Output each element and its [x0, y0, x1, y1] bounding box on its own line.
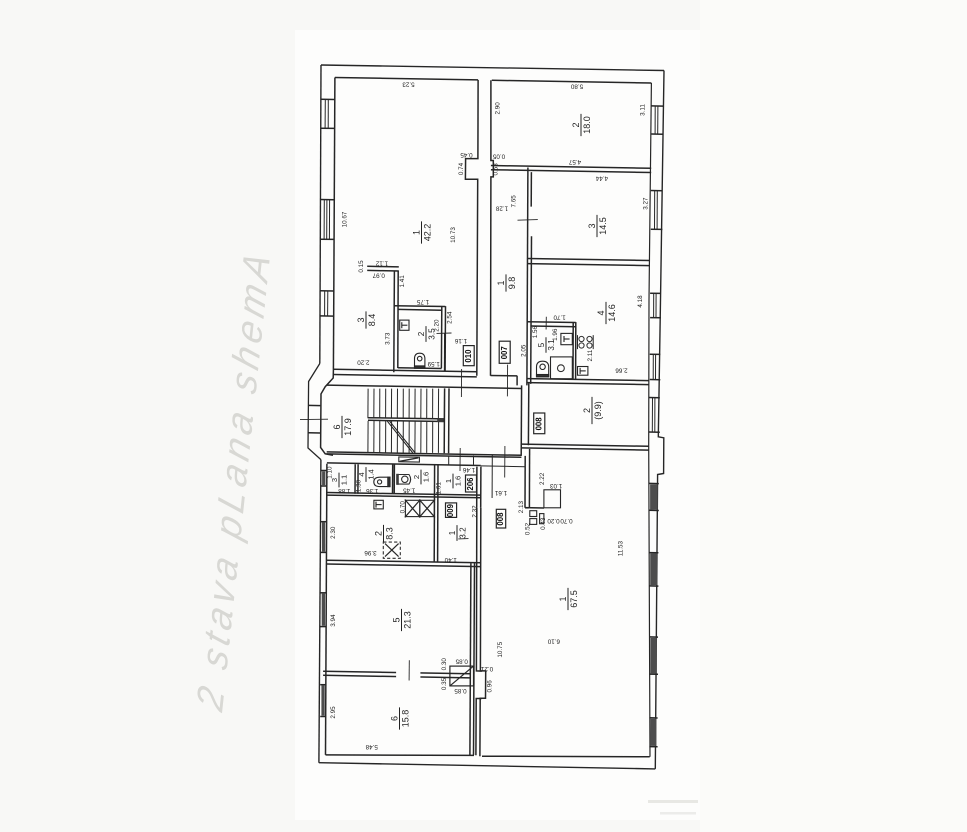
svg-text:1: 1 — [411, 230, 421, 235]
svg-text:1: 1 — [496, 280, 506, 285]
svg-text:4.44: 4.44 — [595, 175, 608, 182]
svg-text:1: 1 — [448, 530, 457, 535]
svg-text:0.20: 0.20 — [547, 517, 560, 524]
svg-text:42.2: 42.2 — [422, 224, 432, 242]
svg-text:7.65: 7.65 — [510, 195, 517, 208]
svg-text:14.5: 14.5 — [598, 217, 608, 235]
svg-text:17.9: 17.9 — [343, 418, 353, 436]
svg-text:15.8: 15.8 — [400, 710, 410, 728]
svg-text:0.15: 0.15 — [358, 260, 365, 273]
svg-text:0.85: 0.85 — [454, 687, 467, 694]
svg-text:010: 010 — [464, 349, 473, 363]
svg-text:5.80: 5.80 — [570, 82, 583, 89]
svg-text:2.22: 2.22 — [539, 472, 546, 485]
svg-text:1.28: 1.28 — [495, 204, 508, 211]
svg-text:21.3: 21.3 — [402, 611, 412, 629]
svg-text:3.73: 3.73 — [384, 332, 391, 345]
svg-text:2.32: 2.32 — [472, 505, 479, 518]
svg-text:0.21: 0.21 — [480, 665, 493, 672]
svg-text:2.90: 2.90 — [494, 102, 501, 115]
svg-text:1.88: 1.88 — [338, 487, 351, 494]
svg-text:1: 1 — [444, 479, 453, 483]
svg-text:5: 5 — [391, 617, 401, 622]
svg-text:2: 2 — [571, 122, 581, 127]
svg-text:5.23: 5.23 — [402, 80, 415, 87]
svg-text:8.4: 8.4 — [367, 314, 377, 327]
svg-text:10.75: 10.75 — [497, 641, 504, 657]
svg-text:1.59: 1.59 — [427, 360, 440, 367]
svg-text:1.16: 1.16 — [454, 337, 467, 344]
svg-text:14.6: 14.6 — [607, 304, 617, 322]
svg-text:1.40: 1.40 — [444, 556, 457, 563]
svg-text:3.2: 3.2 — [458, 527, 467, 539]
svg-text:1.4: 1.4 — [367, 469, 376, 480]
svg-text:1.96: 1.96 — [552, 328, 559, 341]
svg-text:1.45: 1.45 — [403, 486, 416, 493]
svg-text:1.03: 1.03 — [549, 482, 562, 489]
svg-text:3: 3 — [356, 317, 366, 322]
svg-text:0.74: 0.74 — [458, 162, 465, 175]
svg-text:3.96: 3.96 — [364, 549, 377, 556]
svg-text:2.95: 2.95 — [330, 706, 337, 719]
svg-text:1: 1 — [558, 596, 568, 601]
svg-text:0.43: 0.43 — [540, 517, 547, 530]
svg-text:1.41: 1.41 — [399, 275, 406, 288]
svg-text:1.12: 1.12 — [375, 260, 388, 267]
svg-text:1.61: 1.61 — [436, 482, 443, 495]
svg-text:3.94: 3.94 — [330, 614, 337, 627]
svg-text:2: 2 — [417, 331, 426, 336]
svg-text:1.6: 1.6 — [454, 476, 463, 487]
svg-text:1.36: 1.36 — [366, 487, 379, 494]
svg-text:1.61: 1.61 — [494, 489, 507, 496]
svg-text:0.35: 0.35 — [441, 677, 448, 690]
svg-text:4.57: 4.57 — [568, 158, 581, 165]
svg-text:1.6: 1.6 — [422, 472, 431, 483]
svg-text:0.30: 0.30 — [441, 658, 448, 671]
svg-text:4.18: 4.18 — [637, 295, 644, 308]
svg-text:008: 008 — [496, 512, 505, 526]
svg-text:6: 6 — [389, 716, 399, 721]
svg-text:2.66: 2.66 — [615, 367, 628, 374]
svg-text:1.70: 1.70 — [553, 314, 566, 321]
svg-text:6: 6 — [332, 424, 342, 429]
svg-text:67.5: 67.5 — [569, 590, 579, 608]
svg-text:0.70: 0.70 — [560, 517, 573, 524]
svg-text:0.97: 0.97 — [372, 272, 385, 279]
svg-text:2.13: 2.13 — [518, 500, 525, 513]
svg-text:0.70: 0.70 — [400, 501, 407, 514]
svg-text:1.1: 1.1 — [340, 475, 349, 486]
svg-text:6.10: 6.10 — [547, 637, 560, 644]
svg-text:2.05: 2.05 — [521, 344, 528, 357]
svg-text:206: 206 — [466, 477, 475, 491]
svg-text:0.96: 0.96 — [487, 680, 494, 693]
svg-text:4: 4 — [596, 310, 606, 315]
svg-text:1.30: 1.30 — [355, 479, 362, 492]
svg-text:0.53: 0.53 — [492, 163, 499, 176]
svg-text:2: 2 — [412, 475, 421, 479]
svg-text:009: 009 — [446, 503, 455, 517]
svg-text:2.30: 2.30 — [330, 526, 337, 539]
svg-text:2: 2 — [373, 531, 383, 536]
svg-text:2.11: 2.11 — [587, 349, 594, 361]
svg-text:4: 4 — [357, 472, 366, 476]
svg-text:2: 2 — [582, 408, 592, 413]
svg-text:0.52: 0.52 — [524, 522, 531, 535]
svg-text:10.67: 10.67 — [342, 211, 349, 227]
svg-text:0.85: 0.85 — [455, 658, 468, 665]
svg-text:10.73: 10.73 — [450, 227, 457, 243]
svg-text:3.27: 3.27 — [643, 197, 650, 210]
svg-text:2.54: 2.54 — [447, 311, 454, 324]
svg-text:9.8: 9.8 — [507, 277, 517, 290]
svg-text:5.48: 5.48 — [365, 743, 378, 750]
svg-text:0.05: 0.05 — [492, 152, 505, 159]
svg-text:18.0: 18.0 — [582, 116, 592, 134]
svg-text:3: 3 — [587, 223, 597, 228]
svg-text:008: 008 — [534, 417, 543, 431]
svg-text:0.45: 0.45 — [460, 151, 473, 158]
svg-text:8.3: 8.3 — [384, 527, 394, 540]
svg-text:2.20: 2.20 — [434, 319, 441, 332]
svg-text:1.10: 1.10 — [327, 466, 334, 479]
svg-text:007: 007 — [500, 346, 509, 359]
svg-text:1.75: 1.75 — [416, 298, 429, 305]
svg-text:(9.9): (9.9) — [593, 401, 603, 420]
svg-text:5: 5 — [537, 342, 546, 347]
svg-text:1.46: 1.46 — [462, 466, 475, 473]
svg-text:1.56: 1.56 — [532, 325, 539, 338]
svg-text:2.20: 2.20 — [357, 358, 370, 365]
svg-text:3.11: 3.11 — [640, 104, 647, 116]
svg-text:11.53: 11.53 — [617, 540, 624, 556]
